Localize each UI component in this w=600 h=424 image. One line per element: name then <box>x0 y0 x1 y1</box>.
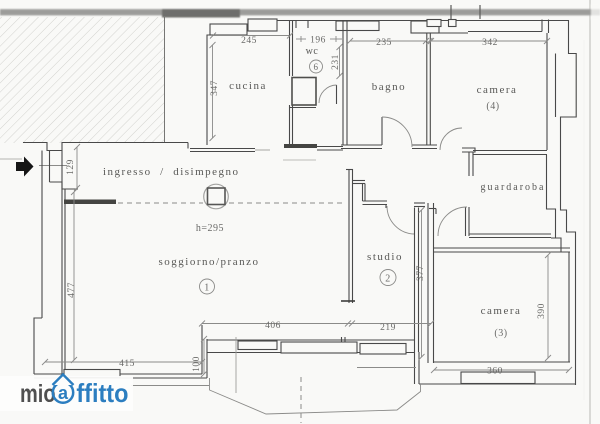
svg-text:219: 219 <box>380 323 396 333</box>
svg-text:1: 1 <box>204 283 210 294</box>
svg-text:bagno: bagno <box>372 81 406 93</box>
svg-text:2: 2 <box>385 274 391 285</box>
svg-text:129: 129 <box>66 159 76 175</box>
svg-text:ingresso / disimpegno: ingresso / disimpegno <box>103 166 240 178</box>
svg-text:415: 415 <box>119 359 135 369</box>
svg-text:390: 390 <box>537 303 547 319</box>
svg-text:347: 347 <box>210 80 220 96</box>
svg-text:477: 477 <box>67 282 77 298</box>
svg-text:6: 6 <box>314 62 319 72</box>
svg-text:ffitto: ffitto <box>76 380 128 408</box>
svg-text:231: 231 <box>331 54 341 70</box>
svg-text:a: a <box>58 383 69 403</box>
svg-text:soggiorno/pranzo: soggiorno/pranzo <box>159 256 260 268</box>
svg-text:cucina: cucina <box>229 80 267 92</box>
svg-text:camera: camera <box>481 305 522 317</box>
svg-text:196: 196 <box>310 36 326 46</box>
svg-text:342: 342 <box>482 38 498 48</box>
svg-text:406: 406 <box>265 321 281 331</box>
svg-text:360: 360 <box>487 367 503 377</box>
svg-text:(4): (4) <box>486 101 499 112</box>
svg-text:wc: wc <box>306 46 319 57</box>
svg-text:guardaroba: guardaroba <box>481 182 546 193</box>
svg-text:h=295: h=295 <box>196 223 224 234</box>
svg-text:studio: studio <box>367 251 403 263</box>
svg-text:377: 377 <box>416 265 426 281</box>
svg-text:245: 245 <box>241 36 257 46</box>
svg-text:camera: camera <box>477 84 518 96</box>
svg-text:(3): (3) <box>494 328 507 339</box>
svg-text:235: 235 <box>376 38 392 48</box>
svg-text:mio: mio <box>20 380 56 408</box>
